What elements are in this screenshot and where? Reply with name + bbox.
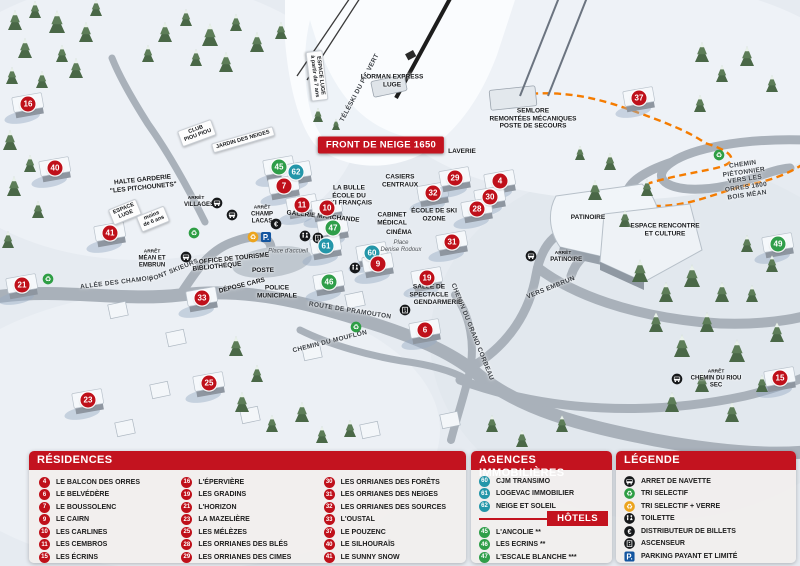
map-label-20: POSTE — [252, 267, 274, 275]
legend-item-number: 10 — [39, 527, 50, 538]
svg-text:♻: ♻ — [353, 323, 360, 332]
hotels-divider: HÔTELS — [479, 518, 608, 520]
map-label-12: ÉCOLE DE SKI OZONE — [411, 207, 457, 222]
legend-item-number: 47 — [479, 552, 490, 563]
map-marker-32: 32 — [426, 186, 441, 201]
wc-icon — [300, 231, 311, 242]
svg-text:♻: ♻ — [250, 233, 257, 242]
legend-item-label: LE POUZENC — [341, 529, 386, 536]
legend-item-label: LES ECRINS ** — [496, 541, 545, 548]
hotels-header: HÔTELS — [547, 511, 608, 526]
legend-item-label: CJM TRANSIMO — [496, 478, 550, 485]
legend-item: 7LE BOUSSOLENC — [39, 501, 177, 513]
map-label-3: SEMLORE REMONTÉES MÉCANIQUES POSTE DE SE… — [489, 108, 576, 131]
legend-item-number: 37 — [324, 527, 335, 538]
legende-item-label: DISTRIBUTEUR DE BILLETS — [641, 528, 736, 535]
legend-item-label: LES ORRIANES DES BLÉS — [198, 541, 287, 548]
euro-icon: € — [624, 526, 635, 537]
legend-item: 28LES ORRIANES DES BLÉS — [181, 539, 319, 551]
legend-item-number: 9 — [39, 514, 50, 525]
svg-text:P.: P. — [626, 552, 632, 561]
map-marker-19: 19 — [420, 271, 435, 286]
legend-item: 29LES ORRIANES DES CIMES — [181, 551, 319, 563]
recycle-green-icon: ♻ — [351, 322, 362, 333]
legende-item: ♻TRI SELECTIF + VERRE — [624, 500, 790, 512]
recycle-green-icon: ♻ — [624, 488, 635, 499]
hotels-list: 45L'ANCOLIE **46LES ECRINS **47L'ESCALE … — [471, 526, 612, 563]
legend-item-number: 19 — [181, 489, 192, 500]
legend-item-number: 15 — [39, 552, 50, 563]
legend-item-label: LES MÉLÈZES — [198, 529, 247, 536]
legend-item-number: 60 — [479, 476, 490, 487]
legend-item-label: LOGEVAC IMMOBILIER — [496, 490, 574, 497]
legend-item-label: LES CARLINES — [56, 529, 107, 536]
legend-item-number: 33 — [324, 514, 335, 525]
map-label-33: CHEMIN PIÉTONNIER VERS LES ORRES 1800 BO… — [715, 157, 775, 203]
legend-item-label: NEIGE ET SOLEIL — [496, 503, 556, 510]
elevator-icon — [400, 305, 411, 316]
svg-text:♻: ♻ — [716, 151, 723, 160]
map-label-34: ARRÊT VILLAGES — [184, 195, 208, 209]
legend-item-label: LES GRADINS — [198, 491, 246, 498]
legende-item: ASCENSEUR — [624, 538, 790, 550]
legend-item: 11LES CEMBROS — [39, 539, 177, 551]
legende-item-label: TOILETTE — [641, 515, 675, 522]
elevator-icon — [624, 538, 635, 549]
map-label-11: LAVERIE — [448, 148, 476, 156]
legende-list: ARRET DE NAVETTE♻TRI SELECTIF♻TRI SELECT… — [616, 470, 796, 563]
legend-item-label: L'ANCOLIE ** — [496, 529, 541, 536]
map-label-37: ARRÊT PATINOIRE — [550, 250, 575, 264]
legend-item: 61LOGEVAC IMMOBILIER — [479, 488, 606, 500]
svg-text:♻: ♻ — [45, 275, 52, 284]
legend-item-label: LES ORRIANES DES FORÊTS — [341, 479, 440, 486]
legend-item-label: LES CEMBROS — [56, 541, 107, 548]
wc-icon — [624, 513, 635, 524]
map-marker-46: 46 — [322, 275, 337, 290]
map-marker-37: 37 — [632, 91, 647, 106]
front-de-neige-banner: FRONT DE NEIGE 1650 — [318, 137, 444, 154]
legend-item: 30LES ORRIANES DES FORÊTS — [324, 476, 462, 488]
map-label-32: ESPACE RENCONTRE ET CULTURE — [630, 222, 699, 237]
legend-item: 25LES MÉLÈZES — [181, 526, 319, 538]
legend-item: 60CJM TRANSIMO — [479, 475, 606, 487]
map-marker-16: 16 — [21, 97, 36, 112]
map-marker-29: 29 — [448, 171, 463, 186]
svg-text:€: € — [628, 528, 632, 535]
residences-header: RÉSIDENCES — [29, 451, 466, 470]
residences-list: 4LE BALCON DES ORRES6LE BELVÉDÈRE7LE BOU… — [29, 470, 466, 563]
legend-item-label: LES ÉCRINS — [56, 554, 98, 561]
legend-item: 33L'OUSTAL — [324, 514, 462, 526]
legend-item: 45L'ANCOLIE ** — [479, 526, 606, 538]
legend-item-number: 28 — [181, 539, 192, 550]
map-marker-10: 10 — [320, 201, 335, 216]
legend-item-label: LES ORRIANES DES SOURCES — [341, 504, 446, 511]
bus-icon — [227, 210, 238, 221]
agences-header: AGENCES IMMOBILIÈRES — [471, 451, 612, 470]
map-marker-45: 45 — [272, 160, 287, 175]
legend-item: 15LES ÉCRINS — [39, 551, 177, 563]
map-marker-31: 31 — [445, 235, 460, 250]
agences-panel: AGENCES IMMOBILIÈRES 60CJM TRANSIMO61LOG… — [471, 451, 612, 563]
parking-icon: P. — [261, 232, 272, 243]
legend-item: 37LE POUZENC — [324, 526, 462, 538]
map-marker-40: 40 — [48, 161, 63, 176]
map-label-10: CASIERS CENTRAUX — [382, 173, 418, 188]
map-marker-23: 23 — [81, 393, 96, 408]
map-label-29: GENDARMERIE — [414, 299, 463, 307]
legend-item-label: LES ORRIANES DES NEIGES — [341, 491, 438, 498]
recycle-green-icon: ♻ — [189, 228, 200, 239]
legend-item: 19LES GRADINS — [181, 489, 319, 501]
legende-item-label: ASCENSEUR — [641, 540, 685, 547]
map-label-14: CABINET MÉDICAL — [377, 211, 407, 226]
euro-icon: € — [271, 219, 282, 230]
bus-icon — [212, 198, 223, 209]
legend-item-label: LES ORRIANES DES CIMES — [198, 554, 291, 561]
map-marker-25: 25 — [202, 376, 217, 391]
map-marker-15: 15 — [773, 371, 788, 386]
wc-icon — [350, 263, 361, 274]
map-label-30: PATINOIRE — [571, 214, 605, 222]
svg-text:€: € — [274, 221, 278, 228]
map-marker-4: 4 — [493, 174, 508, 189]
bus-icon — [181, 252, 192, 263]
legend-item: 10LES CARLINES — [39, 526, 177, 538]
recycle-yellow-icon: ♻ — [248, 232, 259, 243]
legend-item: 40LE SILHOURAÏS — [324, 539, 462, 551]
parking-icon: P. — [624, 551, 635, 562]
legend-item-number: 23 — [181, 514, 192, 525]
legende-item: ARRET DE NAVETTE — [624, 475, 790, 487]
map-label-38: ARRÊT CHEMIN DU RIOU SEC — [690, 368, 742, 389]
map-marker-11: 11 — [295, 198, 310, 213]
legende-header: LÉGENDE — [616, 451, 796, 470]
legende-item-label: ARRET DE NAVETTE — [641, 478, 711, 485]
legend-item-number: 16 — [181, 477, 192, 488]
legend-item: 23LA MAZELIÈRE — [181, 514, 319, 526]
legend-item: 21L'HORIZON — [181, 501, 319, 513]
legend-item-label: LE SILHOURAÏS — [341, 541, 395, 548]
legend-item: 41LE SUNNY SNOW — [324, 551, 462, 563]
bus-icon — [526, 251, 537, 262]
residences-column-2: 16L'ÉPERVIÈRE19LES GRADINS21L'HORIZON23L… — [181, 476, 319, 563]
map-marker-33: 33 — [195, 291, 210, 306]
map-marker-6: 6 — [418, 323, 433, 338]
svg-text:♻: ♻ — [626, 502, 633, 511]
map-label-16: Place Denise Rodoux — [380, 240, 421, 254]
legend-item-label: L'OUSTAL — [341, 516, 375, 523]
legend-item-label: L'HORIZON — [198, 504, 236, 511]
legend-item-label: L'ESCALE BLANCHE *** — [496, 554, 577, 561]
bus-icon — [672, 374, 683, 385]
map-marker-9: 9 — [371, 257, 386, 272]
legende-item-label: TRI SELECTIF + VERRE — [641, 503, 720, 510]
legende-item: P.PARKING PAYANT ET LIMITÉ — [624, 550, 790, 562]
legende-item: ♻TRI SELECTIF — [624, 488, 790, 500]
legend-item: 31LES ORRIANES DES NEIGES — [324, 489, 462, 501]
legende-item: €DISTRIBUTEUR DE BILLETS — [624, 525, 790, 537]
legende-item: TOILETTE — [624, 513, 790, 525]
map-marker-62: 62 — [289, 165, 304, 180]
legend-item: 32LES ORRIANES DES SOURCES — [324, 501, 462, 513]
legend-item-number: 30 — [324, 477, 335, 488]
legend-item-number: 32 — [324, 502, 335, 513]
legend-item-number: 21 — [181, 502, 192, 513]
legende-item-label: PARKING PAYANT ET LIMITÉ — [641, 553, 737, 560]
legend-item-number: 31 — [324, 489, 335, 500]
legend-item-label: L'ÉPERVIÈRE — [198, 479, 244, 486]
svg-text:P.: P. — [263, 233, 269, 242]
map-label-17: Place d'accueil — [268, 248, 308, 255]
map-marker-21: 21 — [15, 278, 30, 293]
legend-item-label: LA MAZELIÈRE — [198, 516, 249, 523]
legende-item-label: TRI SELECTIF — [641, 490, 688, 497]
legend-item-number: 7 — [39, 502, 50, 513]
map-marker-28: 28 — [470, 202, 485, 217]
recycle-green-icon: ♻ — [714, 150, 725, 161]
legend-item-label: LE CAIRN — [56, 516, 89, 523]
map-marker-41: 41 — [103, 226, 118, 241]
legend-item-number: 4 — [39, 477, 50, 488]
legend-item-number: 61 — [479, 488, 490, 499]
legend-item: 9LE CAIRN — [39, 514, 177, 526]
map-marker-47: 47 — [326, 221, 341, 236]
legend-item: 46LES ECRINS ** — [479, 539, 606, 551]
map-label-2: L'ORMAN EXPRESS LUGE — [361, 73, 424, 88]
legend-item-number: 40 — [324, 539, 335, 550]
residences-column-3: 30LES ORRIANES DES FORÊTS31LES ORRIANES … — [324, 476, 462, 563]
recycle-yellow-icon: ♻ — [624, 501, 635, 512]
legende-panel: LÉGENDE ARRET DE NAVETTE♻TRI SELECTIF♻TR… — [616, 451, 796, 563]
legend-item-number: 6 — [39, 489, 50, 500]
svg-text:♻: ♻ — [626, 489, 633, 498]
map-marker-7: 7 — [277, 179, 292, 194]
legend-item-label: LE BOUSSOLENC — [56, 504, 116, 511]
legend-item: 6LE BELVÉDÈRE — [39, 489, 177, 501]
svg-text:♻: ♻ — [191, 229, 198, 238]
map-marker-30: 30 — [483, 190, 498, 205]
legend-item-label: LE SUNNY SNOW — [341, 554, 400, 561]
legend-item-label: LE BELVÉDÈRE — [56, 491, 109, 498]
map-label-36: ARRÊT MÉAN ET EMBRUN — [130, 248, 174, 269]
map-label-15: CINÉMA — [386, 229, 412, 237]
legend-item-number: 29 — [181, 552, 192, 563]
legend-item-number: 25 — [181, 527, 192, 538]
legend-item-number: 46 — [479, 539, 490, 550]
recycle-green-icon: ♻ — [43, 274, 54, 285]
legend-item-number: 11 — [39, 539, 50, 550]
map-marker-49: 49 — [771, 237, 786, 252]
legend-item-number: 45 — [479, 527, 490, 538]
legend-item-label: LE BALCON DES ORRES — [56, 479, 140, 486]
legend-item: 4LE BALCON DES ORRES — [39, 476, 177, 488]
legend-item: 47L'ESCALE BLANCHE *** — [479, 551, 606, 563]
residences-column-1: 4LE BALCON DES ORRES6LE BELVÉDÈRE7LE BOU… — [39, 476, 177, 563]
legend-item: 16L'ÉPERVIÈRE — [181, 476, 319, 488]
resort-map: FRONT DE NEIGE 1650 16404121332325456271… — [0, 0, 800, 566]
legend-item-number: 62 — [479, 501, 490, 512]
legend-item-number: 41 — [324, 552, 335, 563]
bus-icon — [624, 476, 635, 487]
map-label-22: POLICE MUNICIPALE — [257, 284, 297, 299]
map-label-28: SALLE DE SPECTACLE — [410, 283, 449, 298]
map-marker-61: 61 — [319, 239, 334, 254]
residences-panel: RÉSIDENCES 4LE BALCON DES ORRES6LE BELVÉ… — [29, 451, 466, 563]
